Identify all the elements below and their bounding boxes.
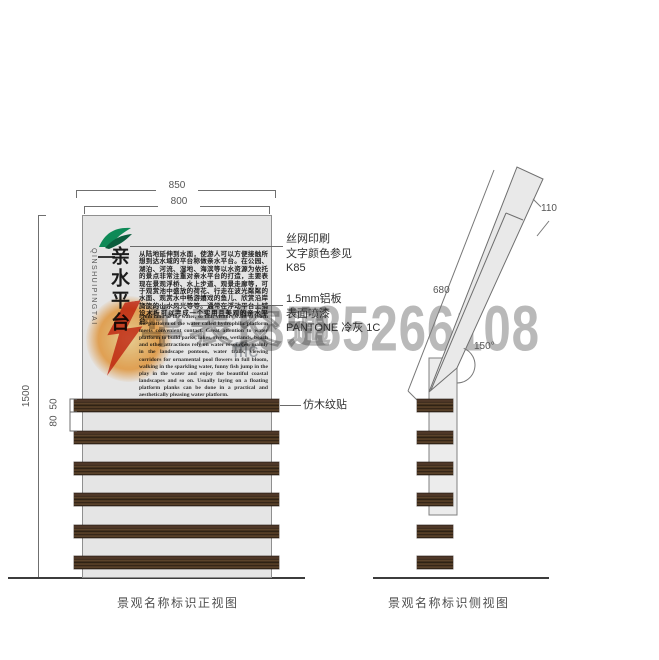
wood-slat-front-1 [74,399,279,412]
dim-800-tick-right [269,206,270,214]
dim-850-tick-right [275,190,276,198]
side-view-caption: 景观名称标识侧视图 [388,594,510,611]
sign-panel-front: QINSHUIPINGTAI 亲水平台 从陆地延伸到水面，使游人可以方便接触所想… [82,215,272,578]
annotation-panel-line2: 表面喷漆 [286,307,380,322]
leader-wood [280,405,301,406]
wood-slat-front-6 [74,556,279,569]
dim-680-label: 680 [433,285,450,296]
leader-panel-material [140,305,283,306]
side-view-drawing [370,150,580,580]
annotation-print-line2: 文字颜色参见 [286,247,352,262]
dim-850-label: 850 [156,180,198,191]
annotation-print: 丝网印刷 文字颜色参见 K85 [286,232,352,276]
wood-slat-side-6 [417,556,453,569]
leader-print [130,246,283,247]
annotation-panel-line3: PANTONE 冷灰 1C [286,321,380,336]
dim-1500-tick-top [38,215,46,216]
wood-slat-side-2 [417,431,453,444]
annotation-print-line3: K85 [286,261,352,276]
annotation-wood-line1: 仿木纹贴 [303,398,347,413]
annotation-panel-material: 1.5mm铝板 表面喷漆 PANTONE 冷灰 1C [286,292,380,336]
wood-slat-front-5 [74,525,279,538]
wood-slat-front-2 [74,431,279,444]
wood-slat-side-3 [417,462,453,475]
dim-850-tick-left [76,190,77,198]
dim-110-label: 110 [541,203,557,214]
wood-slat-front-4 [74,493,279,506]
dim-1500-label: 1500 [22,385,32,407]
dim-800-tick-left [84,206,85,214]
sign-title-pinyin: QINSHUIPINGTAI [90,248,97,378]
dim-800-label: 800 [158,196,200,207]
annotation-print-line1: 丝网印刷 [286,232,352,247]
wood-slat-side-1 [417,399,453,412]
wood-slat-side-4 [417,493,453,506]
slat-dim-bracket [55,390,85,440]
wood-slat-front-3 [74,462,279,475]
dim-1500-line [38,215,39,578]
annotation-wood: 仿木纹贴 [303,398,347,413]
sign-title: 亲水平台 [105,246,132,334]
annotation-panel-line1: 1.5mm铝板 [286,292,380,307]
design-drawing-sheet: 850 800 1500 50 80 QINSHUIPINGTAI 亲水平台 从… [0,0,659,660]
sign-intro-english: From land to the water, so that visitors… [139,314,268,399]
wood-slat-side-5 [417,525,453,538]
front-view-caption: 景观名称标识正视图 [117,594,239,611]
dim-150deg-label: 150° [474,341,495,352]
